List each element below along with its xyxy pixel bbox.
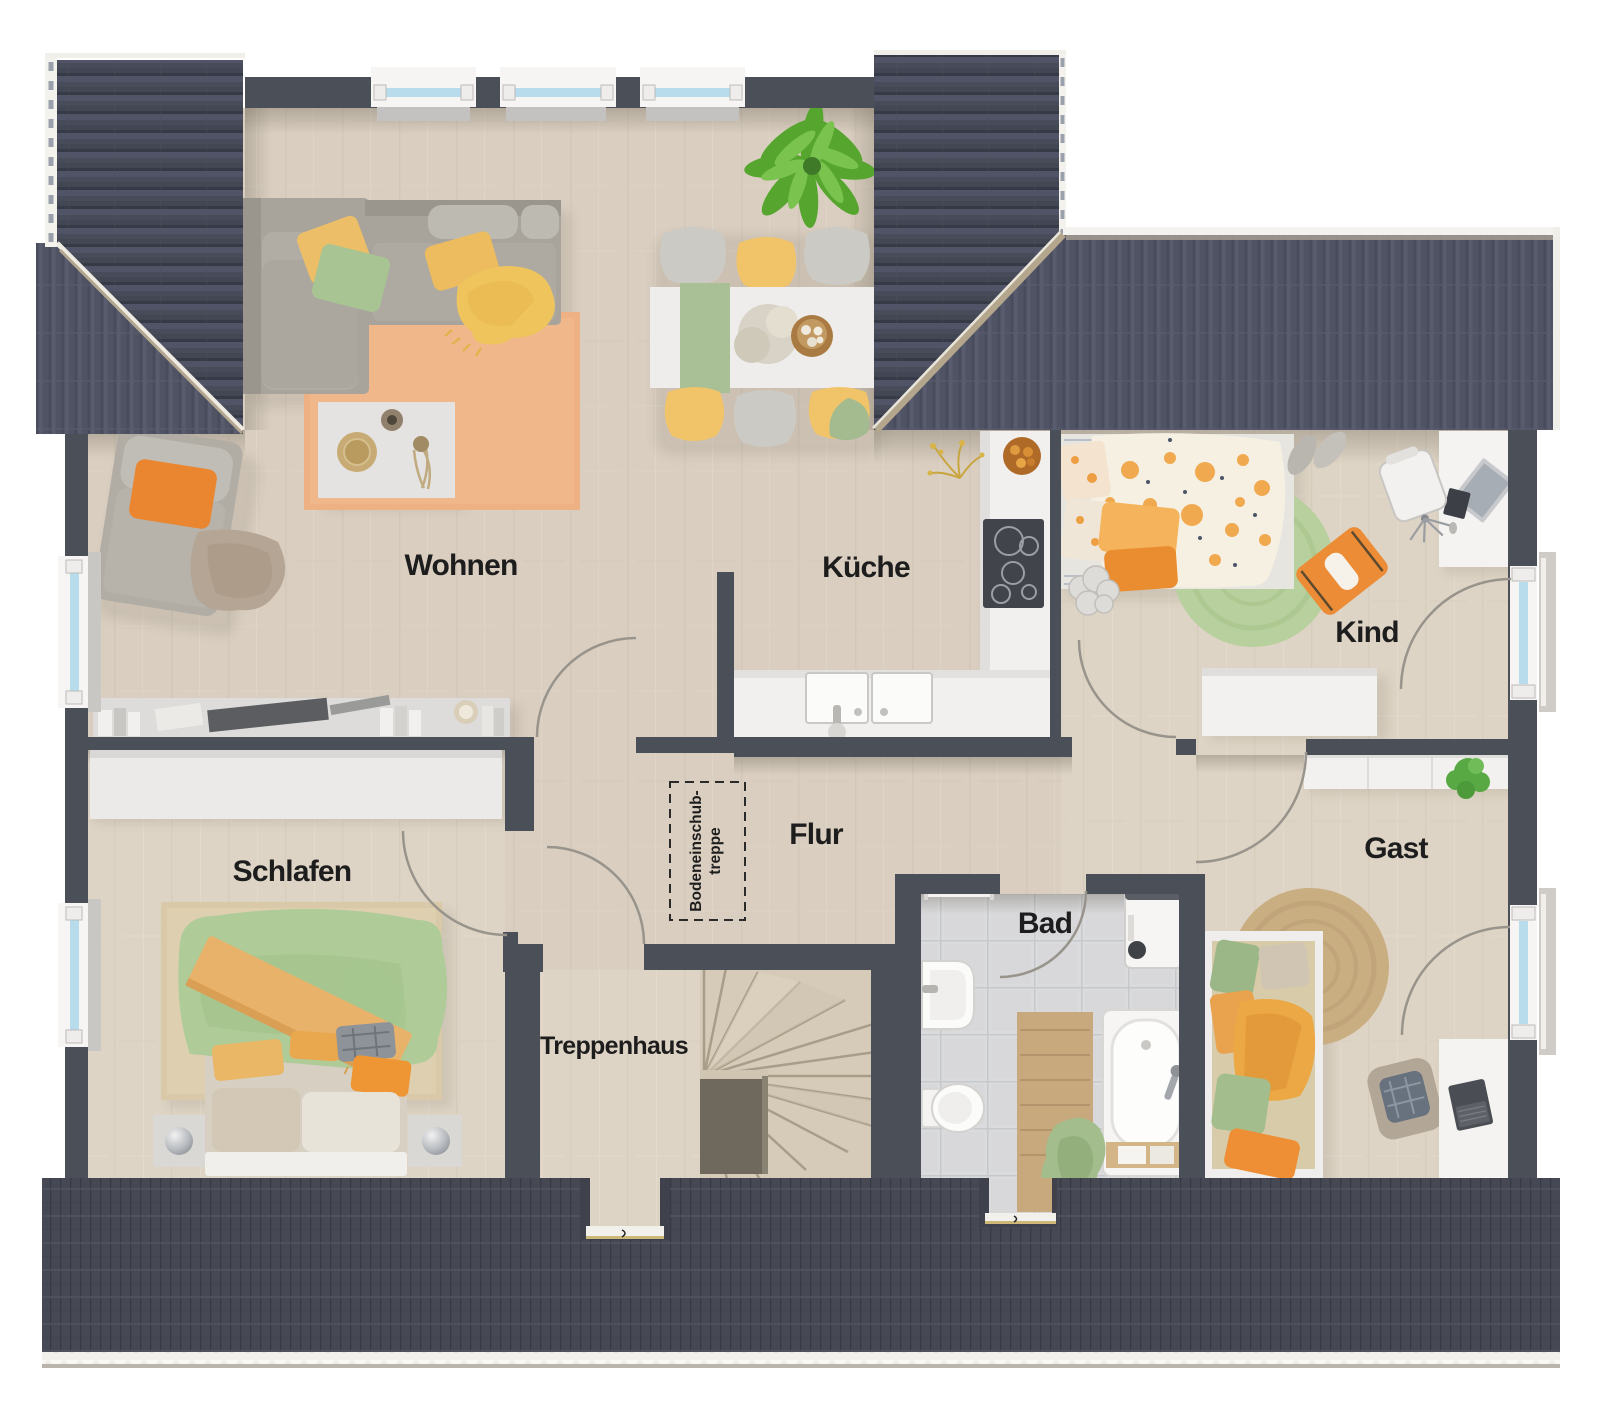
svg-text:Wohnen: Wohnen [405,549,518,582]
svg-text:Bad: Bad [1018,907,1072,940]
svg-text:Kind: Kind [1335,616,1398,649]
svg-text:Gast: Gast [1364,832,1428,865]
svg-text:Küche: Küche [822,551,910,584]
svg-text:Flur: Flur [789,818,844,851]
svg-text:Bodeneinschub-: Bodeneinschub- [688,790,705,911]
svg-text:Schlafen: Schlafen [233,855,352,888]
svg-text:treppe: treppe [707,827,724,875]
svg-text:Treppenhaus: Treppenhaus [540,1032,688,1060]
